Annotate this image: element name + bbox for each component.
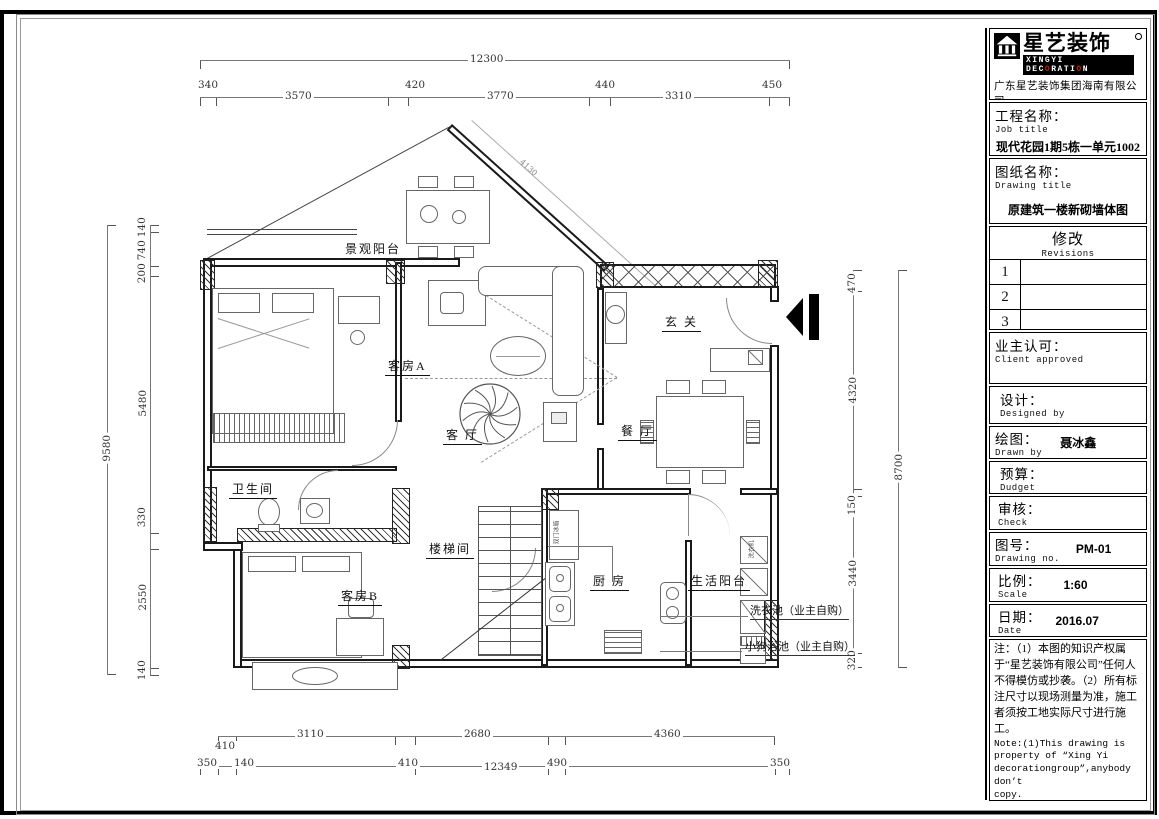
room-label-balcony: 景观阳台 bbox=[342, 240, 404, 259]
revision-entry-1 bbox=[1021, 260, 1146, 284]
fridge-label: 双门冰箱 bbox=[552, 520, 561, 544]
burner-2 bbox=[666, 606, 679, 619]
wall-left-lower bbox=[233, 548, 242, 668]
room-label-dining: 餐 厅 bbox=[618, 422, 657, 441]
pillar-top-left bbox=[200, 260, 215, 290]
scale-label-en: Scale bbox=[998, 590, 1042, 600]
dim-bottom-total: 12349 bbox=[482, 762, 519, 773]
room-label-stair: 楼梯间 bbox=[426, 540, 474, 559]
no-label-en: Drawing no. bbox=[995, 554, 1060, 564]
entrance-arrow-bar bbox=[809, 294, 819, 340]
balcony-rail-1 bbox=[207, 229, 357, 230]
pillar-bath-left bbox=[203, 487, 217, 542]
wall-bath-top bbox=[207, 466, 397, 471]
client-label-en: Client approved bbox=[995, 355, 1141, 365]
pillar-kitchen-corner bbox=[541, 488, 559, 510]
dim-left-2: 740 bbox=[137, 238, 148, 262]
sheet-label-en: Drawing title bbox=[995, 181, 1141, 191]
budget-section: 预算： Dudget bbox=[989, 461, 1147, 494]
toilet-tank bbox=[258, 524, 280, 532]
counter-edge-h bbox=[548, 546, 612, 547]
entrance-arrow-icon bbox=[786, 298, 803, 336]
drawn-label-en: Drawn by bbox=[995, 448, 1042, 458]
dim-top-total: 12300 bbox=[468, 54, 505, 65]
desk-a-chair bbox=[440, 292, 464, 314]
client-approved-section: 业主认可： Client approved bbox=[989, 332, 1147, 384]
room-label-foyer: 玄 关 bbox=[662, 313, 701, 332]
tv-set bbox=[551, 412, 567, 424]
scale-value: 1:60 bbox=[1064, 578, 1088, 592]
revision-row-1: 1 bbox=[990, 259, 1146, 284]
right-segment-dim-line bbox=[853, 270, 862, 668]
room-label-living: 客 厅 bbox=[443, 426, 482, 445]
dining-chair-1 bbox=[666, 380, 690, 394]
balcony-chair-2 bbox=[454, 176, 474, 188]
dim-top-6: 3310 bbox=[663, 91, 694, 102]
sink-2-drain bbox=[556, 604, 564, 612]
door-arc-service bbox=[688, 494, 730, 536]
revision-entry-2 bbox=[1021, 285, 1146, 309]
dog-bath-leader bbox=[660, 651, 742, 652]
date-value: 2016.07 bbox=[1056, 614, 1099, 628]
revision-row-2: 2 bbox=[990, 284, 1146, 309]
toilet bbox=[258, 498, 280, 526]
dim-right-1: 470 bbox=[847, 271, 858, 295]
date-label-cn: 日期： bbox=[998, 606, 1042, 626]
dim-bottom-l6: 350 bbox=[768, 758, 792, 769]
xingyi-logo-icon bbox=[994, 33, 1020, 59]
company-cn: 广东星艺装饰集团海南有限公司 bbox=[994, 78, 1142, 100]
dining-chair-2 bbox=[702, 380, 726, 394]
floor-plan: 12300 340 3570 420 3770 440 3310 450 958… bbox=[0, 0, 985, 819]
dim-bottom-u1: 410 bbox=[213, 741, 237, 752]
dim-bottom-u3: 2680 bbox=[462, 729, 493, 740]
scale-section: 比例： Scale 1:60 bbox=[989, 568, 1147, 602]
dim-right-3: 150 bbox=[847, 493, 858, 517]
budget-label-en: Dudget bbox=[1000, 483, 1141, 493]
budget-label-cn: 预算： bbox=[1000, 463, 1141, 483]
staircase-rail bbox=[510, 506, 511, 656]
balcony-table-plate-2 bbox=[452, 210, 466, 224]
dim-left-4: 5480 bbox=[138, 388, 149, 419]
dining-chair-3 bbox=[666, 470, 690, 484]
room-label-bath: 卫生间 bbox=[229, 480, 277, 499]
pillar-top-right bbox=[758, 260, 778, 288]
wall-foyer-left-lower bbox=[597, 448, 604, 493]
logo-section: 星艺装饰 XINGYI DECORATION 广东星艺装饰集团海南有限公司 XI… bbox=[989, 28, 1147, 100]
dim-top-2: 3570 bbox=[283, 91, 314, 102]
sink-1-drain bbox=[556, 574, 564, 582]
coffee-table-line bbox=[496, 356, 540, 357]
notes-section: 注：（1）本图的知识产权属于“星艺装饰有限公司”任何人不得模仿或抄袭。（2）所有… bbox=[989, 639, 1147, 801]
diagonal-dim-line bbox=[471, 120, 654, 285]
revision-entry-3 bbox=[1021, 310, 1146, 330]
job-label-cn: 工程名称： bbox=[995, 105, 1141, 125]
dim-left-1: 140 bbox=[137, 215, 148, 239]
left-segment-dim-line bbox=[150, 225, 159, 676]
rev-label-en: Revisions bbox=[990, 249, 1146, 259]
desk-b bbox=[336, 618, 384, 656]
dim-bottom-u2: 3110 bbox=[295, 729, 326, 740]
doorbell-panel bbox=[748, 350, 763, 365]
dim-diagonal: 4130 bbox=[516, 157, 539, 179]
dim-top-1: 340 bbox=[196, 80, 220, 91]
laundry-leader bbox=[660, 616, 748, 617]
room-label-kitchen: 厨 房 bbox=[590, 572, 629, 591]
pillar-top-mid bbox=[386, 260, 405, 284]
dim-right-4: 3440 bbox=[848, 558, 859, 589]
dining-chair-4 bbox=[702, 470, 726, 484]
bay-vanity-bowl bbox=[292, 667, 338, 685]
brand-reg-mark bbox=[1135, 33, 1142, 40]
notes-cn: 注：（1）本图的知识产权属于“星艺装饰有限公司”任何人不得模仿或抄袭。（2）所有… bbox=[994, 642, 1142, 738]
job-label-en: Job title bbox=[995, 125, 1141, 135]
balcony-chair-3 bbox=[418, 246, 438, 258]
sheet-label-cn: 图纸名称： bbox=[995, 161, 1141, 181]
door-arc-entry bbox=[726, 298, 772, 344]
dining-table bbox=[656, 396, 744, 468]
revision-number-1: 1 bbox=[990, 260, 1021, 284]
dim-top-3: 420 bbox=[403, 80, 427, 91]
room-label-guest-a: 客房A bbox=[385, 357, 430, 376]
drawn-label-cn: 绘图： bbox=[995, 428, 1042, 448]
dim-left-5: 330 bbox=[137, 505, 148, 529]
dim-top-5: 440 bbox=[593, 80, 617, 91]
balcony-chair-1 bbox=[418, 176, 438, 188]
no-value: PM-01 bbox=[1076, 542, 1111, 556]
wall-kitchen-top-1 bbox=[541, 488, 691, 495]
dim-bottom-l2: 140 bbox=[232, 758, 256, 769]
dog-bath-label: 小狗浴池（业主自购） bbox=[745, 638, 855, 656]
dim-right-2: 4320 bbox=[848, 375, 859, 406]
sheet-value: 原建筑一楼新砌墙体图 bbox=[995, 201, 1141, 218]
dim-left-3: 200 bbox=[137, 261, 148, 285]
date-label-en: Date bbox=[998, 626, 1042, 636]
dim-top-7: 450 bbox=[760, 80, 784, 91]
design-label-cn: 设计： bbox=[1000, 389, 1141, 409]
dim-top-4: 3770 bbox=[485, 91, 516, 102]
wall-kitchen-top-2 bbox=[740, 488, 778, 495]
rev-label-cn: 修改 bbox=[1052, 232, 1084, 248]
dim-left-7: 140 bbox=[137, 658, 148, 682]
balcony-table-plate-1 bbox=[420, 205, 438, 223]
entry-plant bbox=[606, 305, 625, 324]
wall-new-brick-top bbox=[600, 264, 776, 288]
wall-service-divider bbox=[685, 540, 692, 666]
dresser-a bbox=[338, 296, 380, 324]
scale-label-cn: 比例： bbox=[998, 570, 1042, 590]
bath-basin-bowl bbox=[306, 503, 323, 518]
pillar-hall-upper bbox=[392, 488, 410, 544]
balcony-rail-2 bbox=[207, 234, 357, 235]
no-label-cn: 图号： bbox=[995, 534, 1060, 554]
client-label-cn: 业主认可： bbox=[995, 335, 1141, 355]
drawn-by-section: 绘图： Drawn by 聂冰鑫 bbox=[989, 426, 1147, 459]
bed-a-pillow-2 bbox=[272, 293, 314, 313]
job-value: 现代花园1期5栋一单元1002 bbox=[995, 138, 1141, 155]
date-section: 日期： Date 2016.07 bbox=[989, 604, 1147, 637]
room-label-guest-b: 客房B bbox=[338, 587, 382, 606]
washer-1-label: 洗衣机 bbox=[747, 540, 756, 558]
stool-a bbox=[350, 330, 365, 345]
revisions-section: 修改 Revisions 1 2 3 bbox=[989, 226, 1147, 330]
dim-bottom-u4: 4360 bbox=[652, 729, 683, 740]
brand-en: XINGYI DECORATION bbox=[1023, 55, 1134, 75]
job-title-section: 工程名称： Job title 现代花园1期5栋一单元1002 bbox=[989, 102, 1147, 156]
wardrobe-a bbox=[213, 413, 345, 443]
design-label-en: Designed by bbox=[1000, 409, 1141, 419]
bed-b-pillow-2 bbox=[302, 556, 350, 572]
sightline-h bbox=[405, 378, 617, 379]
dim-bottom-l1: 350 bbox=[195, 758, 219, 769]
pillar-diagonal-foot bbox=[596, 262, 614, 288]
check-section: 审核： Check bbox=[989, 496, 1147, 530]
drawn-value: 聂冰鑫 bbox=[1060, 434, 1096, 451]
laundry-label: 洗衣池（业主自购） bbox=[750, 602, 849, 620]
wall-guest-a-right bbox=[395, 262, 402, 422]
dim-left-6: 2550 bbox=[138, 582, 149, 613]
burner-1 bbox=[666, 587, 679, 600]
notes-en: Note:(1)This drawing is property of “Xin… bbox=[994, 738, 1142, 801]
title-block: 星艺装饰 XINGYI DECORATION 广东星艺装饰集团海南有限公司 XI… bbox=[985, 28, 1147, 800]
bed-a-pillow-1 bbox=[218, 293, 260, 313]
dim-bottom-l3: 410 bbox=[396, 758, 420, 769]
dining-chair-6 bbox=[746, 420, 760, 444]
designed-by-section: 设计： Designed by bbox=[989, 386, 1147, 424]
dim-left-total: 9580 bbox=[102, 433, 113, 464]
door-arc-guest-a bbox=[352, 420, 398, 466]
balcony-chair-4 bbox=[454, 246, 474, 258]
balcony-table bbox=[406, 190, 490, 244]
floor-vent bbox=[604, 630, 642, 654]
sofa-side bbox=[552, 266, 584, 396]
wall-top-a bbox=[203, 258, 460, 267]
revision-number-2: 2 bbox=[990, 285, 1021, 309]
dim-right-total: 8700 bbox=[894, 452, 905, 483]
dim-bottom-l5: 490 bbox=[545, 758, 569, 769]
wall-foyer-left-upper bbox=[597, 288, 604, 425]
revision-row-3: 3 bbox=[990, 309, 1146, 330]
check-label-cn: 审核： bbox=[998, 498, 1141, 518]
drawing-no-section: 图号： Drawing no. PM-01 bbox=[989, 532, 1147, 566]
revision-number-3: 3 bbox=[990, 310, 1021, 330]
drawing-title-section: 图纸名称： Drawing title 原建筑一楼新砌墙体图 bbox=[989, 158, 1147, 224]
bed-b-pillow-1 bbox=[248, 556, 296, 572]
brand-cn: 星艺装饰 bbox=[1023, 33, 1134, 54]
wall-left-step bbox=[203, 542, 243, 551]
check-label-en: Check bbox=[998, 518, 1141, 528]
room-label-service: 生活阳台 bbox=[688, 572, 750, 591]
